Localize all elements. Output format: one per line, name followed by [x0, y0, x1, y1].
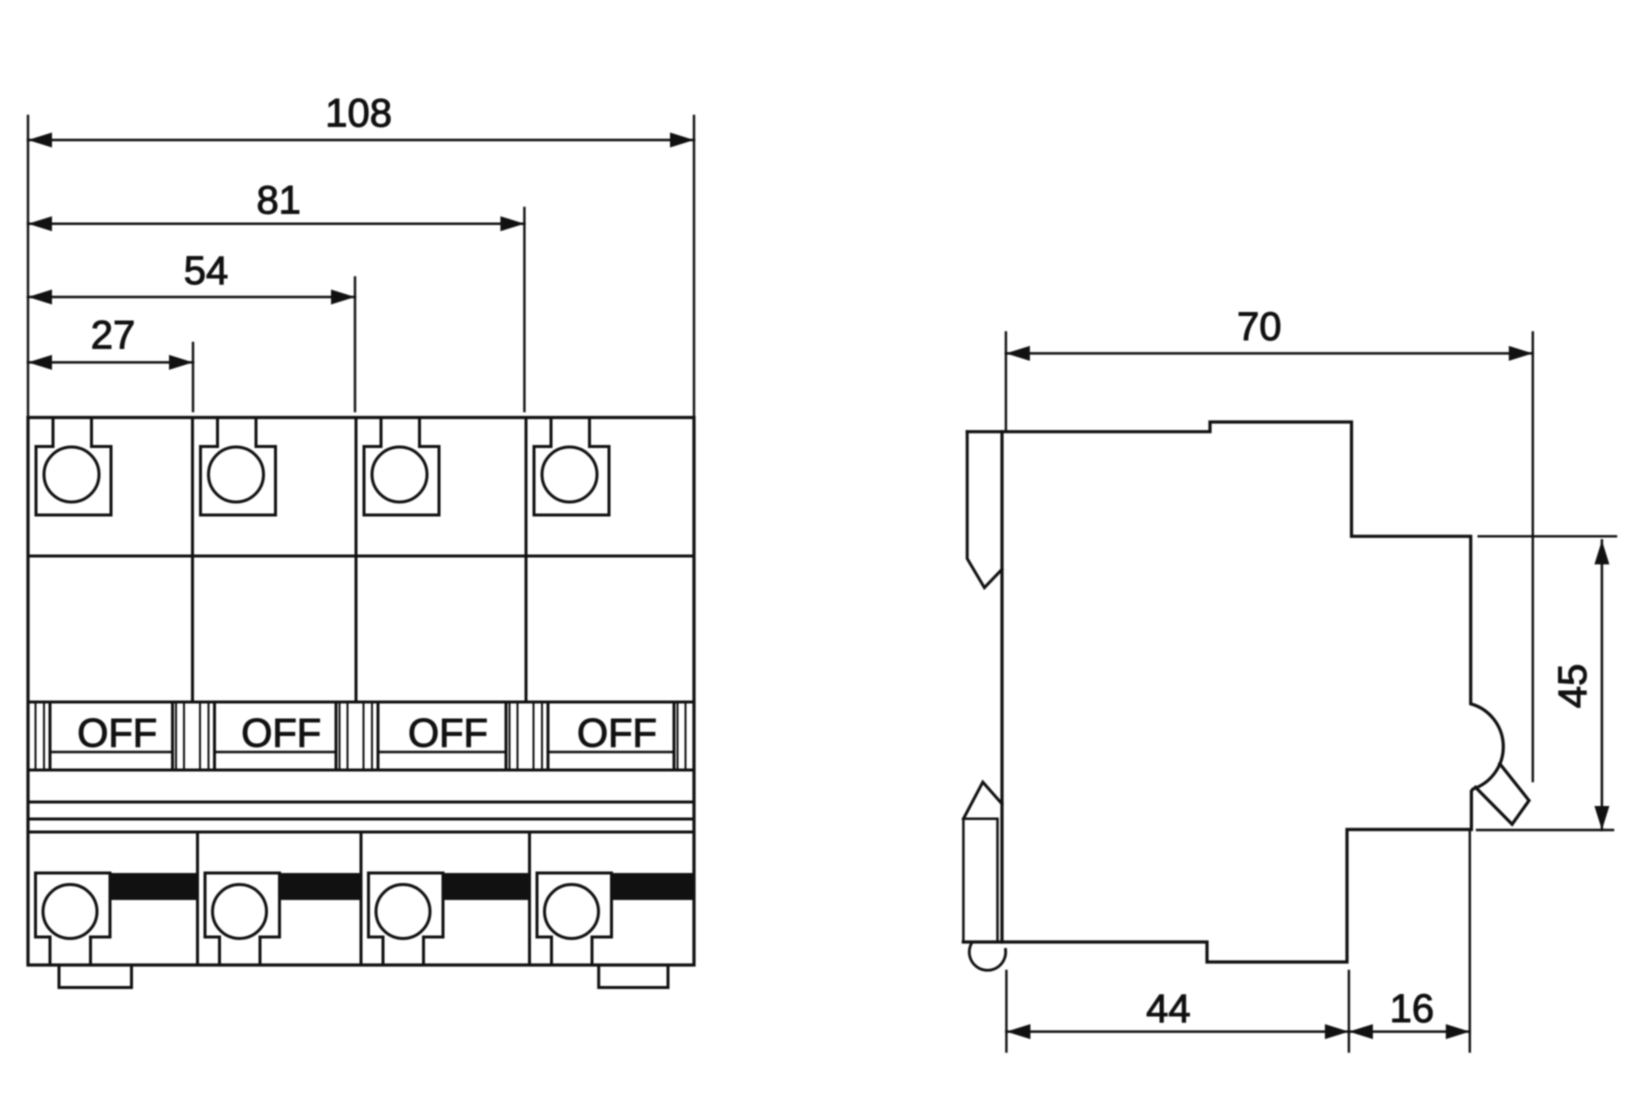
svg-text:45: 45: [1551, 664, 1595, 709]
svg-text:OFF: OFF: [241, 712, 321, 756]
svg-text:OFF: OFF: [77, 712, 157, 756]
svg-text:44: 44: [1146, 987, 1191, 1031]
svg-text:OFF: OFF: [577, 712, 657, 756]
svg-text:70: 70: [1237, 305, 1282, 349]
svg-text:27: 27: [91, 314, 136, 358]
svg-text:108: 108: [325, 92, 392, 136]
svg-text:54: 54: [184, 249, 229, 293]
svg-text:OFF: OFF: [408, 712, 488, 756]
svg-text:16: 16: [1390, 987, 1435, 1031]
svg-text:81: 81: [256, 179, 301, 223]
